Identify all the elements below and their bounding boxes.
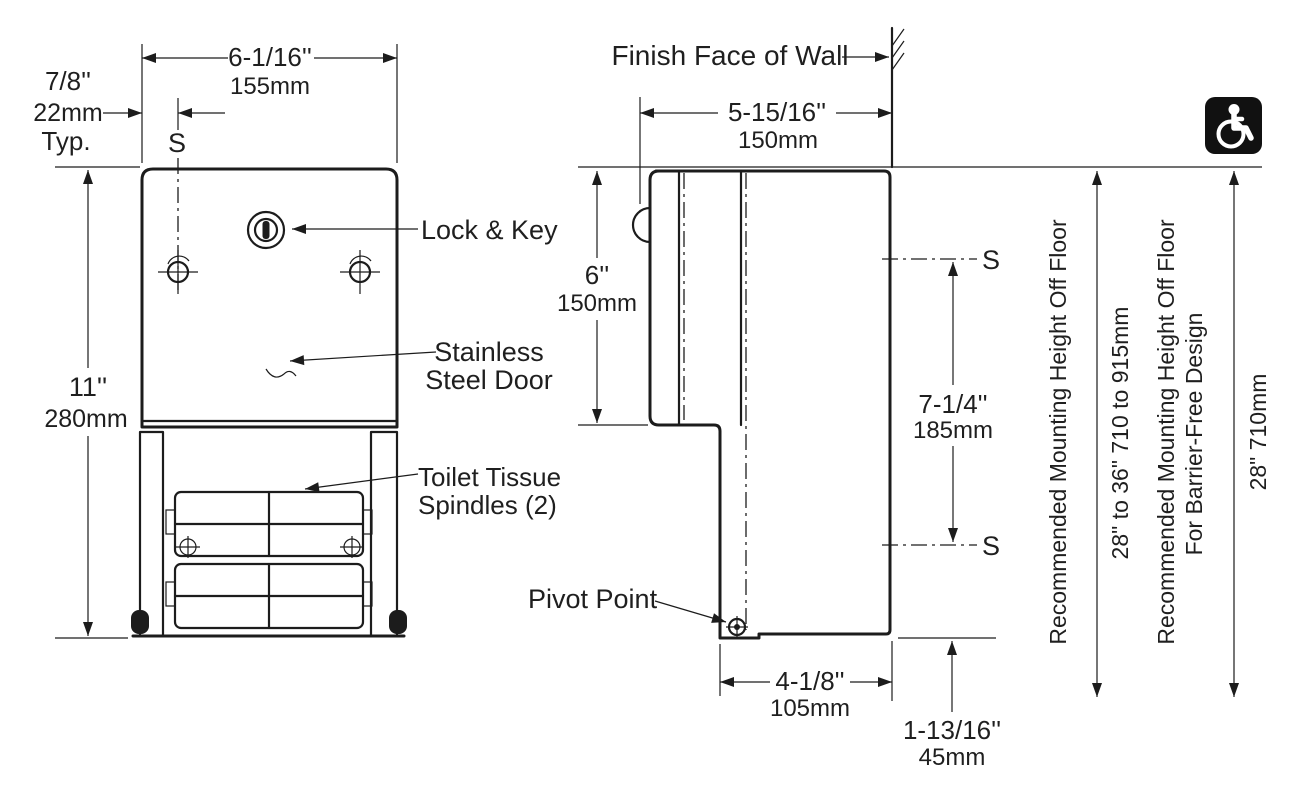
dim-depth-in: 5-15/16'' (728, 97, 826, 127)
pivot-icon (726, 616, 748, 638)
front-door-outline (142, 169, 397, 427)
dim-edge-offset-mm: 22mm (33, 99, 102, 127)
wheelchair-icon (1205, 97, 1262, 154)
dim-bottom-offset-mm: 45mm (919, 744, 986, 771)
spindles-leader (305, 474, 418, 489)
dim-centerline-spacing-in: 7-1/4'' (918, 389, 987, 419)
front-left-foot (131, 610, 149, 634)
drawing-page: 6-1/16'' 155mm 7/8'' 22mm Typ. S 11'' 28… (0, 0, 1303, 788)
door-label-line1: Stainless (434, 337, 544, 367)
front-centerline-label: S (168, 128, 186, 158)
pivot-leader (655, 601, 726, 622)
dim-centerline-spacing-mm: 185mm (913, 417, 993, 444)
side-door-outline (650, 171, 677, 425)
lower-centerline-label: S (982, 531, 1000, 561)
mounting-barrier-free-range: 28" 710mm (1245, 374, 1271, 491)
side-lock-bump (633, 208, 650, 242)
lock-icon (248, 212, 284, 248)
mounting-hole-icon (340, 250, 380, 294)
spindle-tab (166, 510, 175, 534)
spindles-label-line1: Toilet Tissue (418, 462, 561, 492)
wall-hatching (892, 29, 904, 70)
mounting-barrier-free-label-line2: For Barrier-Free Design (1181, 313, 1207, 556)
dim-base-depth-in: 4-1/8'' (775, 666, 844, 696)
lock-label: Lock & Key (421, 215, 558, 245)
mounting-standard-range: 28" to 36" 710 to 915mm (1107, 307, 1133, 560)
mounting-standard-label: Recommended Mounting Height Off Floor (1045, 219, 1071, 645)
side-body-outline (656, 171, 890, 638)
technical-drawing: 6-1/16'' 155mm 7/8'' 22mm Typ. S 11'' 28… (0, 0, 1303, 788)
front-right-foot (389, 610, 407, 634)
wall-label: Finish Face of Wall (611, 40, 848, 71)
pivot-label: Pivot Point (528, 584, 658, 614)
door-label-line2: Steel Door (425, 365, 553, 395)
front-left-bracket (140, 432, 163, 636)
front-right-bracket (371, 432, 397, 636)
dim-base-depth-mm: 105mm (770, 695, 850, 722)
dim-front-width-in: 6-1/16'' (228, 42, 312, 72)
dim-bottom-offset-in: 1-13/16'' (903, 715, 1001, 745)
front-dimensions (55, 44, 436, 638)
dim-depth-mm: 150mm (738, 127, 818, 154)
dim-edge-offset-in: 7/8'' (45, 66, 91, 96)
front-view (131, 98, 407, 636)
dim-front-width-mm: 155mm (230, 73, 310, 100)
door-surface-mark (266, 369, 296, 377)
dim-top-to-door-in: 6'' (585, 260, 609, 290)
dim-edge-offset-note: Typ. (41, 126, 90, 156)
dim-top-to-door-mm: 150mm (557, 290, 637, 317)
door-leader (290, 352, 436, 361)
spindle-tab (166, 582, 175, 606)
mounting-barrier-free-label-line1: Recommended Mounting Height Off Floor (1153, 219, 1179, 645)
spindle-target-icon (176, 536, 200, 558)
dim-front-height-mm: 280mm (44, 405, 127, 433)
spindles-label-line2: Spindles (2) (418, 490, 557, 520)
upper-centerline-label: S (982, 245, 1000, 275)
dim-front-height-in: 11'' (69, 372, 107, 402)
